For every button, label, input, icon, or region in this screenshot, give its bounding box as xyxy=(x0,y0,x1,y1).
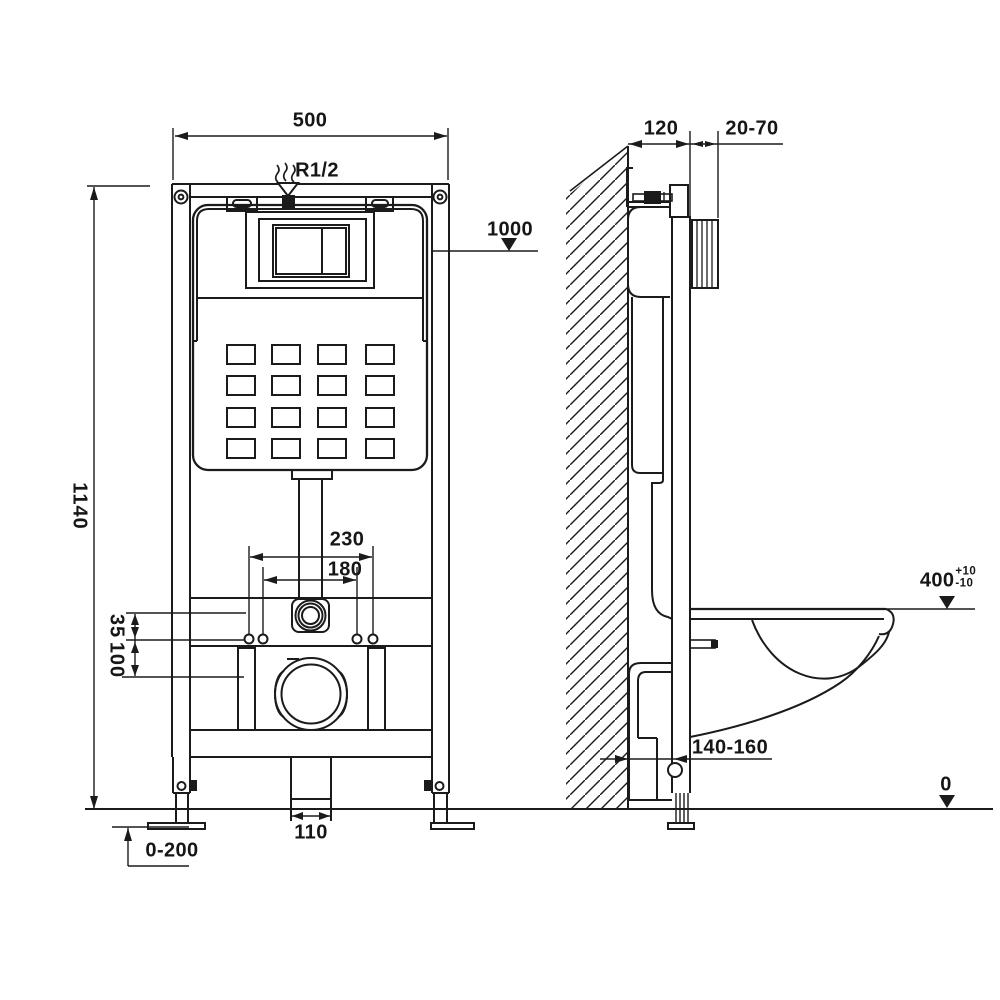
side-frame-rail xyxy=(670,185,690,793)
dim-drain-width: 110 xyxy=(294,822,327,845)
cistern xyxy=(193,205,427,470)
left-foot xyxy=(148,757,205,829)
level-marker-400-icon xyxy=(939,596,955,609)
waste-elbow xyxy=(629,663,672,800)
dim-cistern-level: 1000 xyxy=(487,219,533,242)
dim-seat-height: 400 +10 -10 xyxy=(920,570,976,593)
wall-hatch xyxy=(566,146,628,809)
drain-collar xyxy=(275,658,347,730)
dim-offset-lower: 100 xyxy=(105,642,128,678)
side-view xyxy=(566,131,894,829)
perforation-grid xyxy=(227,345,394,458)
dim-floor-adjust: 0-200 xyxy=(145,840,198,863)
drain-outlet xyxy=(668,763,682,777)
dim-frame-width: 500 xyxy=(293,110,328,133)
dimension-lines xyxy=(85,128,993,866)
level-marker-0-icon xyxy=(939,795,955,808)
dim-frame-depth: 120 xyxy=(644,118,679,141)
front-view xyxy=(148,163,474,829)
floor-level-label: 0 xyxy=(940,774,952,797)
fixing-stud xyxy=(690,640,717,648)
right-post xyxy=(368,648,385,730)
cistern-side xyxy=(628,207,672,619)
left-post xyxy=(238,648,255,730)
flush-plate xyxy=(246,212,374,288)
dim-seat-height-tolerance: +10 -10 xyxy=(955,566,976,590)
right-foot xyxy=(425,757,474,829)
dim-seat-height-value: 400 xyxy=(920,570,955,593)
dim-frame-height: 1140 xyxy=(68,482,91,529)
flush-plate-conduit xyxy=(690,131,718,288)
wall-bracket xyxy=(627,168,672,207)
dim-offset-upper: 35 xyxy=(105,614,128,638)
toilet-bowl-profile xyxy=(690,609,894,737)
drain-pipe xyxy=(291,757,331,821)
water-connection-fitting xyxy=(292,599,329,632)
dim-bolt-spacing-outer: 230 xyxy=(330,529,365,552)
inlet-thread-label: R1/2 xyxy=(295,160,339,183)
dim-outlet-distance: 140-160 xyxy=(692,737,768,760)
dim-bolt-spacing-inner: 180 xyxy=(328,559,363,582)
side-foot xyxy=(668,793,694,829)
tolerance-plus: +10 xyxy=(955,566,976,578)
bolt-holes xyxy=(245,635,378,644)
technical-drawing-page: 500 R1/2 120 20-70 1000 1140 230 180 35 … xyxy=(0,0,1000,1000)
dim-wall-finish: 20-70 xyxy=(725,118,778,141)
tolerance-minus: -10 xyxy=(955,578,976,590)
